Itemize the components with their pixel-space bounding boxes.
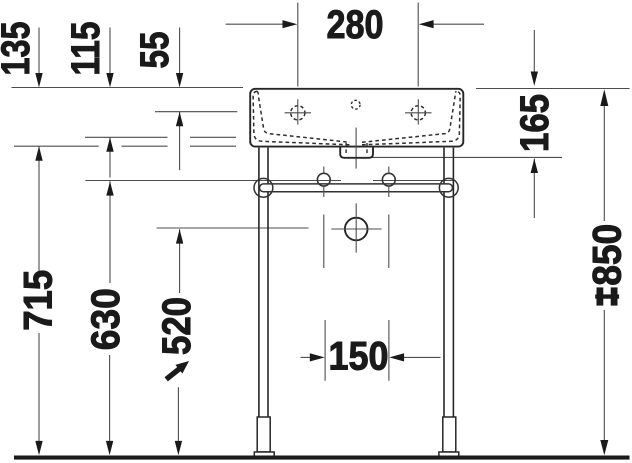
svg-text:715: 715 xyxy=(17,270,61,331)
svg-text:135: 135 xyxy=(0,21,38,75)
svg-text:165: 165 xyxy=(513,94,557,152)
svg-text:55: 55 xyxy=(133,32,177,69)
svg-text:850: 850 xyxy=(586,224,630,286)
svg-text:520: 520 xyxy=(155,297,199,355)
svg-text:115: 115 xyxy=(64,22,108,76)
svg-text:150: 150 xyxy=(329,335,389,379)
svg-text:630: 630 xyxy=(84,288,128,350)
svg-text:280: 280 xyxy=(327,3,384,47)
